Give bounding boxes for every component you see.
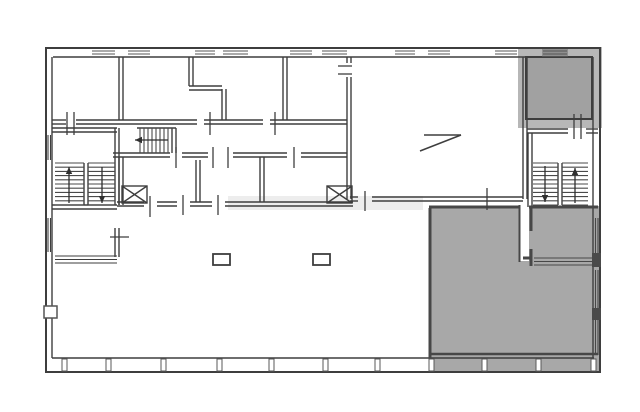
wall-pier [592, 253, 601, 267]
window-dark-top-right [542, 48, 568, 57]
gray-room-top-right [526, 57, 592, 119]
bottom-mullion [536, 359, 541, 371]
bottom-mullion [62, 359, 67, 371]
bottom-mullion [323, 359, 328, 371]
bottom-mullion [106, 359, 111, 371]
bottom-mullion [482, 359, 487, 371]
gray-area-bottom-right [429, 206, 599, 372]
bottom-mullion [161, 359, 166, 371]
bottom-mullion [269, 359, 274, 371]
bottom-mullion [217, 359, 222, 371]
column [313, 254, 330, 265]
column [213, 254, 230, 265]
wall-pier [592, 308, 601, 320]
bottom-mullion [375, 359, 380, 371]
wall-notch [44, 306, 57, 318]
floor-plan-page [0, 0, 640, 412]
floor-plan-svg [0, 0, 640, 412]
bottom-mullion [591, 359, 596, 371]
bottom-mullion [429, 359, 434, 371]
watermark [228, 196, 423, 210]
